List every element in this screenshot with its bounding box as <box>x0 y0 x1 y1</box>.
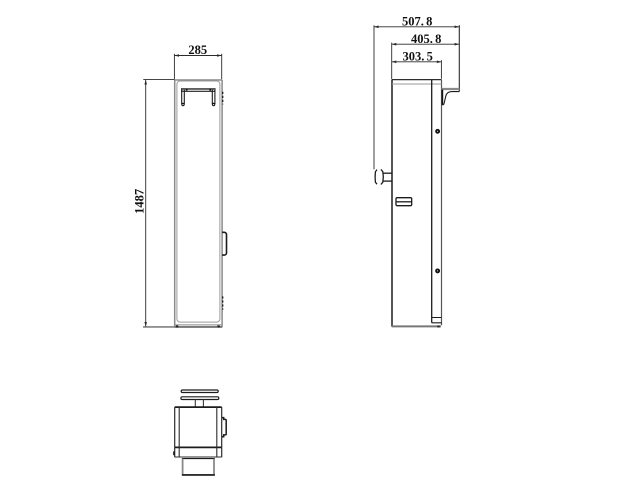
svg-text:285: 285 <box>188 43 207 57</box>
svg-text:507.8: 507.8 <box>402 15 432 29</box>
svg-text:405.8: 405.8 <box>411 32 441 46</box>
svg-text:303.5: 303.5 <box>403 50 433 64</box>
svg-text:1487: 1487 <box>132 189 146 214</box>
